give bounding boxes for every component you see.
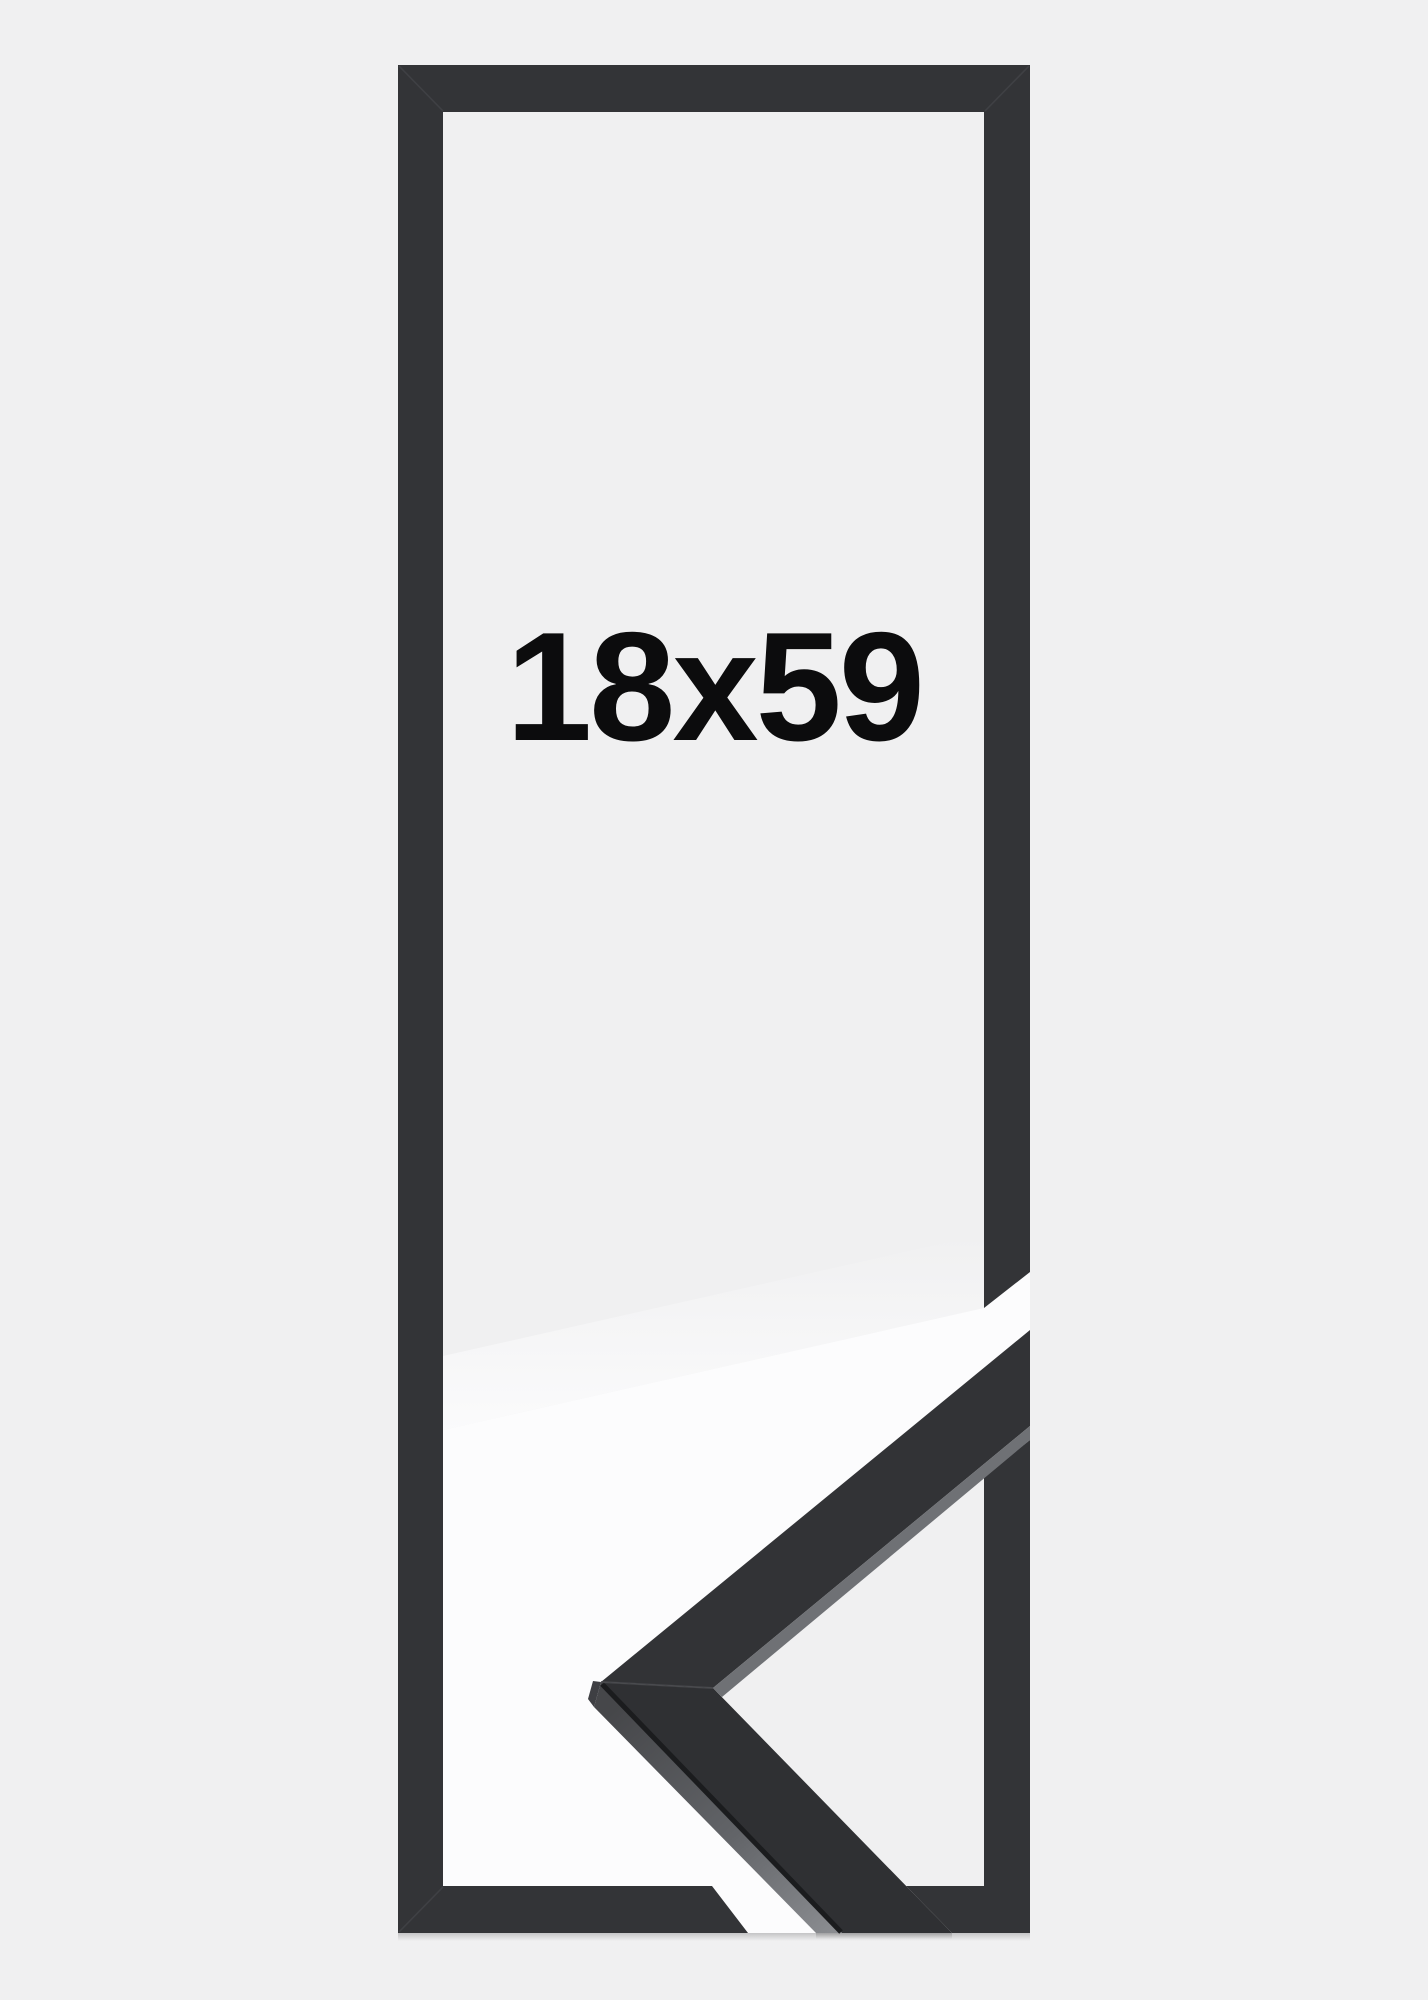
size-label: 18x59 [506,600,922,773]
corner-sample-shadow [816,1933,952,1939]
frame-product-illustration: 18x59 [0,0,1428,2000]
product-image: 18x59 [0,0,1428,2000]
